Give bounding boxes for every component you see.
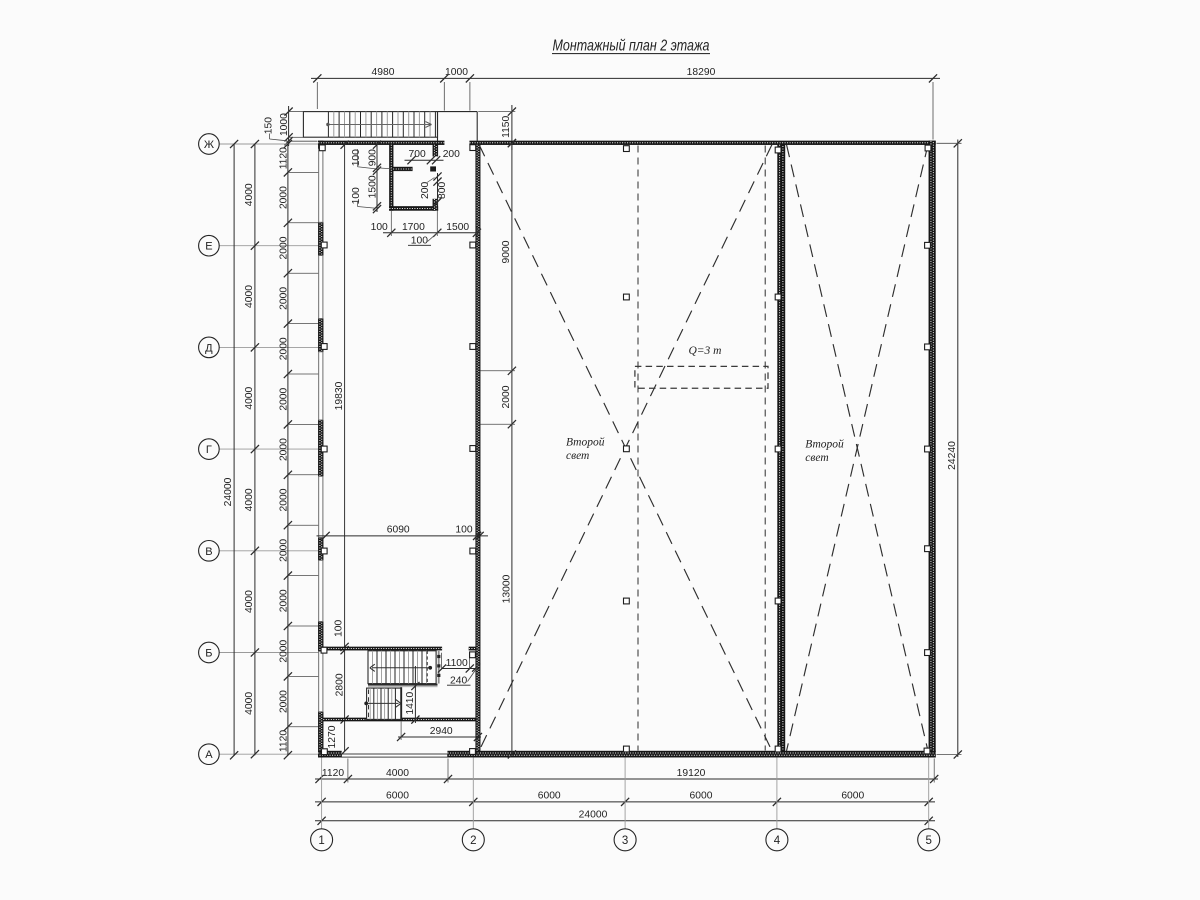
svg-text:200: 200	[420, 182, 431, 199]
svg-text:Q=3 т: Q=3 т	[688, 345, 721, 357]
svg-text:Г: Г	[206, 444, 212, 456]
svg-text:24000: 24000	[223, 477, 234, 506]
svg-text:2000: 2000	[279, 690, 290, 713]
svg-text:800: 800	[437, 182, 448, 199]
svg-text:свет: свет	[566, 450, 589, 462]
svg-text:13000: 13000	[502, 574, 513, 603]
svg-text:1: 1	[318, 835, 324, 847]
svg-text:1700: 1700	[402, 222, 425, 233]
svg-text:4000: 4000	[244, 183, 255, 206]
svg-text:6000: 6000	[841, 791, 864, 802]
svg-text:1150: 1150	[501, 115, 512, 137]
svg-text:1100: 1100	[446, 658, 468, 669]
svg-text:Второй: Второй	[566, 436, 605, 449]
svg-text:6000: 6000	[538, 791, 561, 802]
svg-text:2000: 2000	[279, 186, 290, 209]
svg-text:6090: 6090	[387, 525, 410, 536]
svg-text:Е: Е	[205, 241, 212, 253]
svg-text:1120: 1120	[322, 768, 344, 779]
svg-text:1120: 1120	[279, 730, 290, 752]
svg-text:1410: 1410	[405, 691, 416, 714]
svg-text:2000: 2000	[279, 589, 290, 612]
svg-text:2000: 2000	[279, 387, 290, 410]
svg-text:4: 4	[774, 835, 781, 847]
svg-text:19120: 19120	[677, 768, 706, 779]
svg-text:2000: 2000	[279, 287, 290, 310]
svg-text:18290: 18290	[687, 67, 716, 78]
svg-text:2000: 2000	[279, 539, 290, 562]
svg-text:4980: 4980	[372, 67, 395, 78]
svg-text:900: 900	[368, 149, 379, 166]
svg-text:свет: свет	[805, 452, 828, 464]
svg-text:В: В	[205, 546, 212, 558]
svg-text:5: 5	[925, 835, 931, 847]
svg-text:700: 700	[409, 149, 426, 160]
svg-text:100: 100	[351, 187, 362, 204]
svg-text:19830: 19830	[334, 381, 345, 410]
svg-text:4000: 4000	[244, 285, 255, 308]
svg-text:4000: 4000	[386, 768, 409, 779]
svg-text:2: 2	[470, 835, 476, 847]
svg-text:6000: 6000	[690, 791, 713, 802]
svg-text:А: А	[205, 749, 213, 761]
svg-text:2000: 2000	[279, 438, 290, 461]
svg-text:1500: 1500	[368, 175, 379, 198]
svg-text:200: 200	[443, 149, 460, 160]
svg-text:Д: Д	[205, 342, 213, 354]
svg-text:100: 100	[333, 620, 344, 637]
svg-text:Монтажный план 2 этажа: Монтажный план 2 этажа	[553, 37, 710, 55]
svg-text:1500: 1500	[446, 222, 469, 233]
svg-text:240: 240	[450, 675, 467, 686]
svg-text:4000: 4000	[244, 590, 255, 613]
svg-text:1270: 1270	[327, 725, 338, 748]
svg-text:2000: 2000	[501, 385, 512, 408]
svg-text:100: 100	[371, 222, 388, 233]
svg-text:24000: 24000	[579, 810, 608, 821]
svg-text:100: 100	[455, 525, 472, 536]
svg-text:2000: 2000	[279, 337, 290, 360]
svg-text:4000: 4000	[244, 692, 255, 715]
svg-text:24240: 24240	[947, 441, 958, 470]
svg-text:2000: 2000	[279, 488, 290, 511]
svg-text:Ж: Ж	[204, 139, 214, 151]
svg-text:4000: 4000	[244, 488, 255, 511]
svg-text:2800: 2800	[335, 673, 346, 696]
svg-text:1120: 1120	[279, 147, 290, 169]
svg-text:2940: 2940	[430, 726, 453, 737]
svg-text:150: 150	[263, 117, 274, 134]
svg-text:2000: 2000	[279, 639, 290, 662]
svg-text:3: 3	[622, 835, 628, 847]
svg-text:2000: 2000	[279, 236, 290, 259]
svg-text:100: 100	[351, 149, 362, 166]
svg-text:Б: Б	[205, 648, 212, 660]
svg-text:Второй: Второй	[805, 438, 844, 451]
svg-text:1000: 1000	[279, 113, 290, 136]
svg-text:6000: 6000	[386, 791, 409, 802]
svg-text:1000: 1000	[445, 67, 468, 78]
svg-text:4000: 4000	[244, 386, 255, 409]
svg-text:9000: 9000	[501, 240, 512, 263]
